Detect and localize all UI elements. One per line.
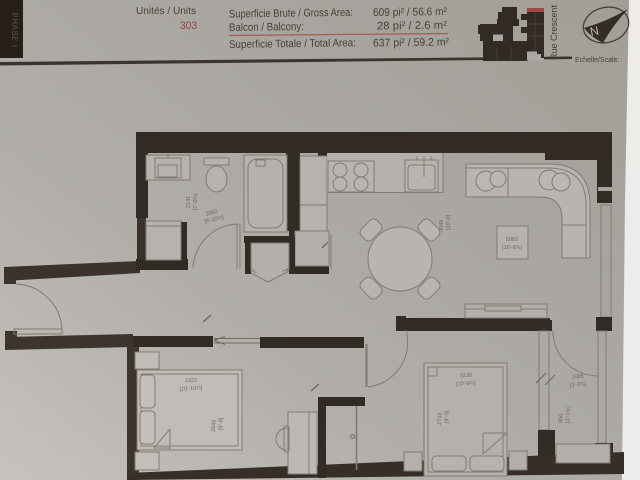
svg-text:PHASE I: PHASE I: [10, 12, 19, 47]
svg-text:[9'-0]: [9'-0]: [444, 410, 451, 423]
svg-text:3230: 3230: [460, 373, 473, 380]
svg-text:2946: 2946: [211, 420, 218, 433]
svg-text:637 pi² / 59.2 m²: 637 pi² / 59.2 m²: [373, 36, 449, 49]
svg-text:[10'-10¾]: [10'-10¾]: [179, 385, 203, 392]
svg-text:[16'-8¾]: [16'-8¾]: [502, 245, 522, 251]
svg-text:Superficie Totale / Total Area: Superficie Totale / Total Area:: [229, 37, 356, 51]
svg-text:[7'-0¼]: [7'-0¼]: [193, 193, 199, 210]
svg-text:Balcon / Balcony:: Balcon / Balcony:: [229, 21, 304, 34]
svg-text:950: 950: [558, 414, 564, 423]
svg-text:2141: 2141: [186, 196, 192, 208]
svg-text:Echelle/Scale:: Echelle/Scale:: [575, 57, 619, 64]
svg-text:[10'-9½]: [10'-9½]: [456, 379, 477, 387]
svg-text:303: 303: [180, 20, 197, 32]
svg-text:609 pi² / 56.6 m²: 609 pi² / 56.6 m²: [373, 6, 447, 19]
svg-text:Superficie Brute / Gross Area:: Superficie Brute / Gross Area:: [229, 7, 353, 21]
svg-text:[3'-1½]: [3'-1½]: [564, 406, 572, 423]
svg-text:[10'-0]: [10'-0]: [446, 214, 452, 230]
svg-text:Rue Crescent: Rue Crescent: [549, 4, 559, 60]
svg-text:1005: 1005: [572, 373, 585, 380]
svg-text:2743: 2743: [437, 413, 444, 426]
svg-text:Unités / Units: Unités / Units: [136, 5, 196, 17]
svg-text:5083: 5083: [506, 237, 518, 243]
svg-text:3322: 3322: [185, 378, 198, 385]
svg-text:28 pi² / 2.6 m²: 28 pi² / 2.6 m²: [377, 20, 448, 33]
svg-text:[9'-8]: [9'-8]: [218, 417, 225, 430]
